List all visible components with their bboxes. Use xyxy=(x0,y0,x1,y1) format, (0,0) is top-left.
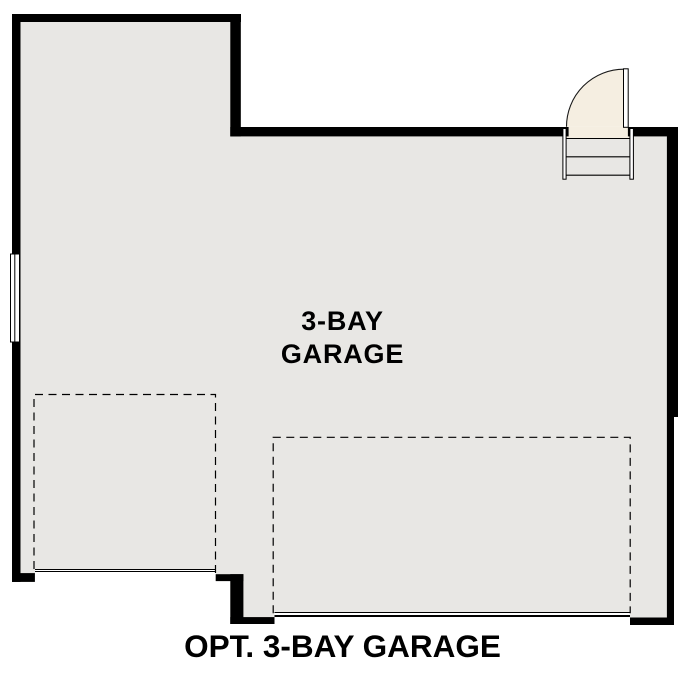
svg-text:OPT. 3-BAY GARAGE: OPT. 3-BAY GARAGE xyxy=(184,628,501,664)
svg-text:3-BAY: 3-BAY xyxy=(301,306,384,336)
svg-text:GARAGE: GARAGE xyxy=(281,339,404,369)
